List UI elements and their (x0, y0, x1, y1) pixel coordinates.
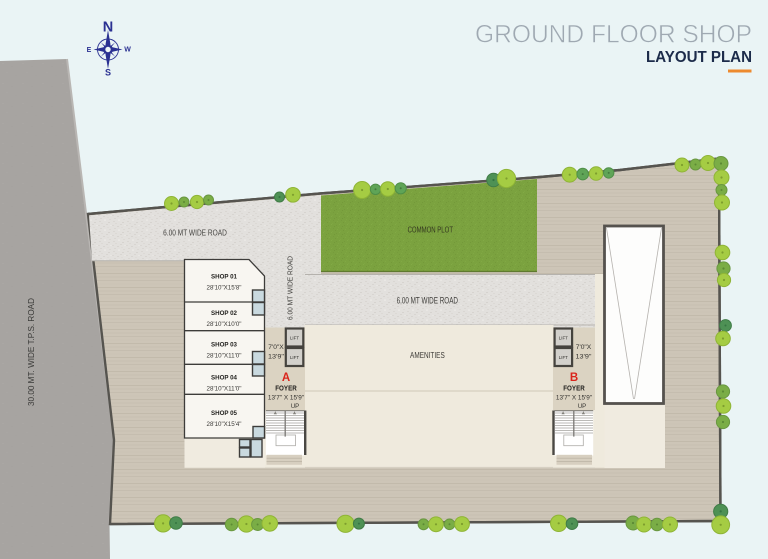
svg-text:LIFT: LIFT (559, 336, 568, 341)
svg-text:A: A (282, 372, 290, 384)
svg-text:SHOP 04: SHOP 04 (211, 375, 237, 382)
svg-text:N: N (103, 20, 113, 36)
svg-text:13'9": 13'9" (576, 354, 592, 361)
svg-text:GROUND FLOOR SHOP: GROUND FLOOR SHOP (475, 21, 752, 49)
svg-text:E: E (87, 47, 92, 54)
svg-text:FOYER: FOYER (563, 384, 585, 393)
svg-text:28'10"X11'0": 28'10"X11'0" (207, 386, 242, 393)
svg-text:13'7" X 15'9": 13'7" X 15'9" (268, 395, 305, 402)
svg-text:UP: UP (291, 404, 299, 410)
svg-text:LIFT: LIFT (559, 355, 568, 360)
svg-text:28'10"X11'0": 28'10"X11'0" (207, 353, 242, 360)
svg-text:LIFT: LIFT (290, 336, 299, 341)
svg-text:7'0"X: 7'0"X (268, 344, 284, 351)
svg-text:B: B (570, 372, 578, 384)
svg-text:FOYER: FOYER (275, 384, 297, 393)
svg-text:LAYOUT PLAN: LAYOUT PLAN (646, 49, 752, 66)
svg-text:S: S (105, 68, 111, 78)
svg-text:6.00 MT WIDE ROAD: 6.00 MT WIDE ROAD (163, 228, 227, 238)
svg-text:28'10"X15'4": 28'10"X15'4" (207, 421, 242, 428)
svg-text:SHOP 05: SHOP 05 (211, 410, 237, 417)
svg-text:7'0"X: 7'0"X (576, 344, 592, 351)
svg-text:13'7" X 15'9": 13'7" X 15'9" (556, 395, 593, 402)
svg-text:SHOP 02: SHOP 02 (211, 310, 237, 317)
svg-text:W: W (124, 47, 131, 54)
svg-text:28'10"X15'8": 28'10"X15'8" (207, 285, 242, 292)
svg-text:UP: UP (578, 404, 586, 410)
svg-text:SHOP 01: SHOP 01 (211, 274, 237, 281)
svg-text:28'10"X10'0": 28'10"X10'0" (207, 321, 242, 328)
svg-text:6.00 MT WIDE ROAD: 6.00 MT WIDE ROAD (397, 295, 459, 305)
svg-text:COMMON PLOT: COMMON PLOT (408, 225, 453, 234)
svg-text:SHOP 03: SHOP 03 (211, 342, 237, 349)
svg-text:30.00 MT. WIDE T.P.S. ROAD: 30.00 MT. WIDE T.P.S. ROAD (27, 298, 36, 406)
svg-text:13'9": 13'9" (268, 354, 284, 361)
svg-text:6.00 MT WIDE ROAD: 6.00 MT WIDE ROAD (286, 256, 295, 320)
svg-text:LIFT: LIFT (290, 355, 299, 360)
svg-text:AMENITIES: AMENITIES (410, 350, 445, 360)
